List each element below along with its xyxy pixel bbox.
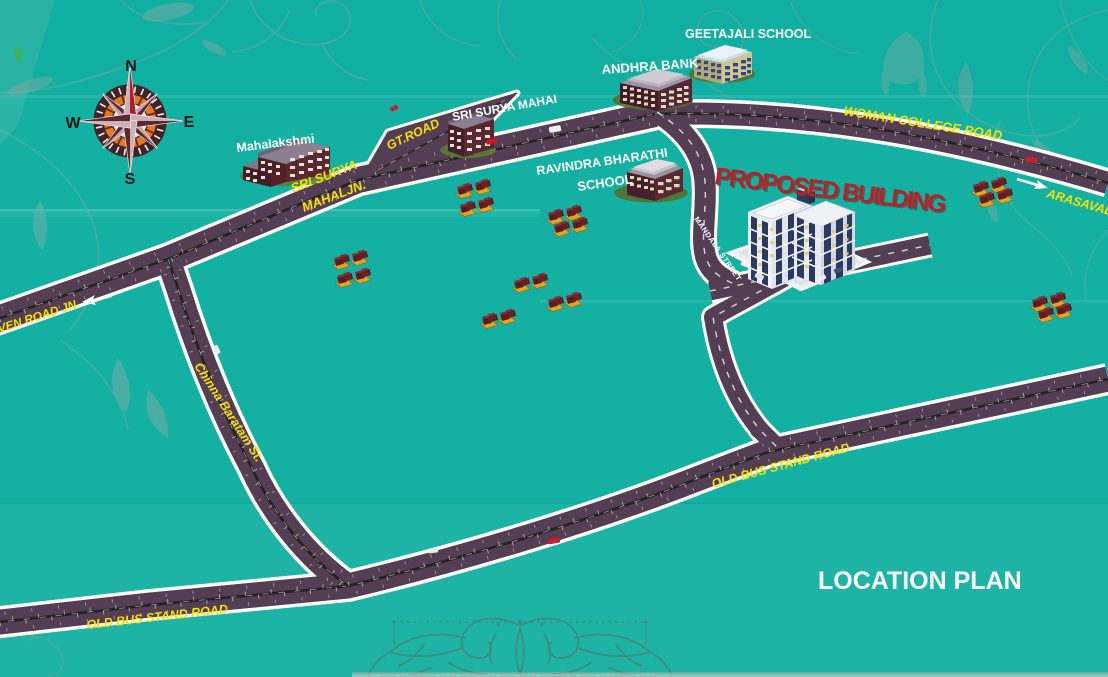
svg-text:E: E (184, 114, 195, 131)
svg-text:GEETAJALI SCHOOL: GEETAJALI SCHOOL (685, 27, 812, 41)
svg-text:LOCATION PLAN: LOCATION PLAN (818, 567, 1022, 595)
svg-text:W: W (65, 115, 81, 132)
svg-text:N: N (125, 58, 137, 75)
svg-text:S: S (125, 171, 136, 188)
